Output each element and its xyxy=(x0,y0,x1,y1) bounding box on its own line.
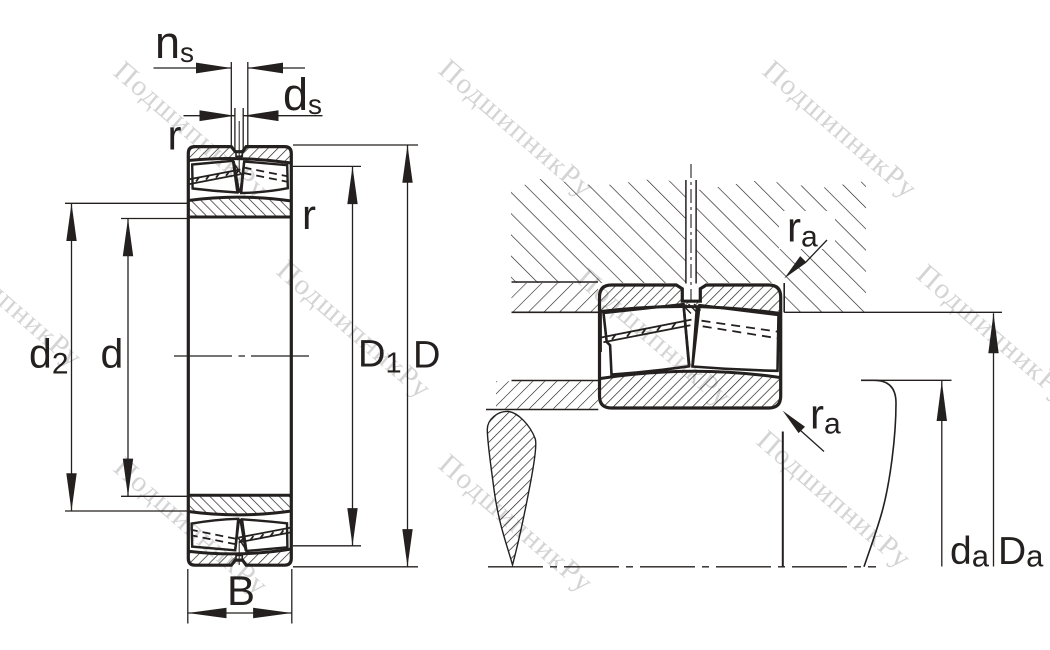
svg-text:d: d xyxy=(101,331,124,377)
svg-text:D1: D1 xyxy=(358,334,402,380)
svg-text:r: r xyxy=(302,191,316,238)
svg-text:ПодшипникРу: ПодшипникРу xyxy=(432,53,599,204)
svg-text:ПодшипникРу: ПодшипникРу xyxy=(910,258,1050,409)
svg-text:r: r xyxy=(168,112,182,159)
svg-text:ra: ra xyxy=(810,391,841,441)
svg-text:da: da xyxy=(950,530,990,574)
svg-text:ds: ds xyxy=(283,69,322,120)
svg-text:D: D xyxy=(413,335,440,377)
svg-text:ns: ns xyxy=(155,17,194,68)
svg-text:ПодшипникРу: ПодшипникРу xyxy=(270,254,437,405)
svg-text:B: B xyxy=(227,567,255,614)
svg-text:Da: Da xyxy=(998,530,1044,574)
svg-text:ПодшипникРу: ПодшипникРу xyxy=(750,424,917,575)
svg-text:ПодшипникРу: ПодшипникРу xyxy=(756,54,923,205)
